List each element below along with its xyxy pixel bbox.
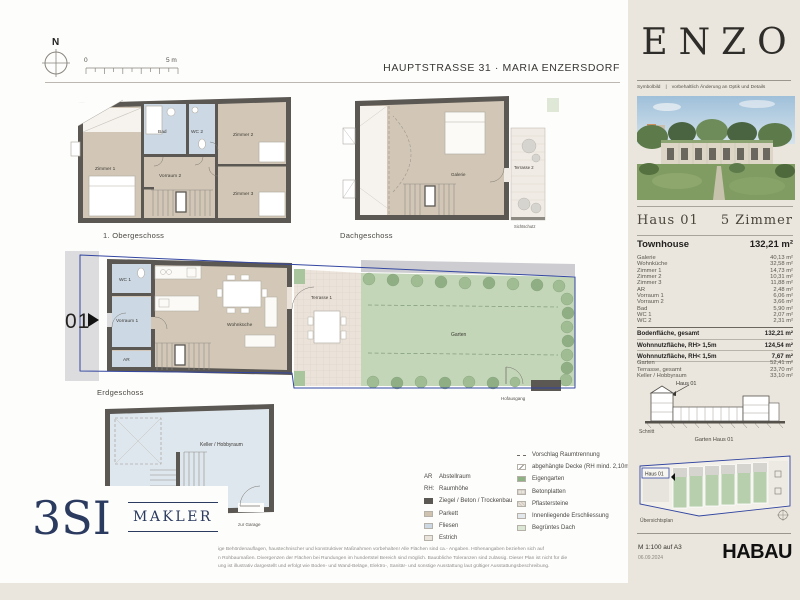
room-area: 6,06 m² xyxy=(773,293,793,299)
legend-column-right: Vorschlag Raumtrennung abgehängte Decke … xyxy=(517,449,631,534)
plan-sheet: N 0 5 m HAUPTSTRASSE 31 · MARIA ENZERSDO… xyxy=(0,0,800,600)
scale-bar: 0 5 m xyxy=(82,52,186,76)
room-name: Wohnküche xyxy=(637,261,668,267)
legend-row: AR Abstellraum xyxy=(424,471,512,483)
extras-table: Garten 52,41 m² Terrasse, gesamt 23,70 m… xyxy=(637,360,793,380)
legend-abbr: AR xyxy=(424,474,432,480)
room-label-wc2: WC 2 xyxy=(191,129,203,135)
extra-label: Garten xyxy=(637,360,655,366)
symbolbild-label: Symbolbild xyxy=(637,85,660,90)
legend-label: Innenliegende Erschliessung xyxy=(532,513,609,519)
legend-row: RH: Raumhöhe xyxy=(424,483,512,495)
legend-row: Fliesen xyxy=(424,520,512,532)
legend-swatch xyxy=(517,501,526,507)
rooms-table: Galerie 40,13 m² Wohnküche 32,58 m² Zimm… xyxy=(637,255,793,324)
room-label-bad: Bad xyxy=(158,129,167,135)
legend-row: Ziegel / Beton / Trockenbau xyxy=(424,495,512,507)
legend-swatch xyxy=(517,513,526,519)
haus-row: Haus 01 5 Zimmer xyxy=(637,206,793,236)
extra-row: Keller / Hobbyraum 33,10 m² xyxy=(637,373,793,380)
room-area: 2,31 m² xyxy=(773,318,793,324)
legend-abbr: RH: xyxy=(424,486,434,492)
north-label: N xyxy=(52,37,59,48)
siteplan: Haus 01 xyxy=(637,446,795,522)
legend-swatch xyxy=(517,525,526,531)
room-name: WC 2 xyxy=(637,318,652,324)
room-label-galerie: Galerie xyxy=(451,172,466,177)
habau-logo: HABAU xyxy=(722,541,792,564)
disclaimer-line: ung ist illustrativ dargestellt und erfo… xyxy=(218,563,625,572)
legend-swatch xyxy=(517,455,526,456)
room-label-vorraum2: Vorraum 2 xyxy=(159,173,181,179)
room-name: Zimmer 1 xyxy=(637,268,661,274)
uebersichtsplan-caption: Übersichtsplan xyxy=(640,518,673,524)
total-row: Bodenfläche, gesamt 132,21 m² xyxy=(637,327,793,340)
room-label-terrasse2: Terrasse 2 xyxy=(514,165,534,170)
legend-label: Fliesen xyxy=(439,523,458,529)
3si-logo: 3SI xyxy=(32,488,111,548)
sidebar-bottom-rule xyxy=(637,533,791,534)
legend-swatch xyxy=(517,464,526,470)
compass-icon: N xyxy=(40,34,84,80)
room-area: 2,07 m² xyxy=(773,312,793,318)
legend-swatch xyxy=(517,476,526,482)
legend-row: Estrich xyxy=(424,532,512,544)
legend-label: abgehängte Decke (RH mind. 2,10m) xyxy=(532,464,631,470)
room-name: Zimmer 2 xyxy=(637,274,661,280)
legend-row: Betonplatten xyxy=(517,486,631,498)
room-label-zimmer3: Zimmer 3 xyxy=(233,191,254,197)
room-area: 40,13 m² xyxy=(770,255,793,261)
room-area: 5,90 m² xyxy=(773,306,793,312)
legend-label: Eigengarten xyxy=(532,476,564,482)
legend-swatch xyxy=(424,498,433,504)
room-name: Vorraum 1 xyxy=(637,293,664,299)
legend-label: Betonplatten xyxy=(532,489,566,495)
unit-number: 01 xyxy=(65,310,90,333)
room-area: 10,31 m² xyxy=(770,274,793,280)
label-sichtschutz: Sichtschutz xyxy=(514,224,535,229)
garten-haus-caption: Garten Haus 01 xyxy=(628,437,800,443)
room-area: 3,66 m² xyxy=(773,299,793,305)
legend-swatch xyxy=(424,535,433,541)
room-label-zimmer1: Zimmer 1 xyxy=(95,166,116,172)
room-label-wc1: WC 1 xyxy=(119,277,131,283)
room-area: 32,58 m² xyxy=(770,261,793,267)
caption-eg: Erdgeschoss xyxy=(97,388,144,397)
extra-row: Garten 52,41 m² xyxy=(637,360,793,367)
legend-label: Parkett xyxy=(439,511,458,517)
disclaimer-text: ige Behördenauflagen, haustechnischer un… xyxy=(218,546,625,572)
symbolbild-text: vorbehaltlich Änderung an Optik und Deta… xyxy=(672,85,766,90)
total-label: Bodenfläche, gesamt xyxy=(637,330,699,337)
legend-swatch xyxy=(424,511,433,517)
room-name: Vorraum 2 xyxy=(637,299,664,305)
unit-area-value: 132,21 m² xyxy=(750,239,793,250)
sidebar-rule xyxy=(637,80,791,81)
room-label-ar: AR xyxy=(123,357,130,363)
room-name: Zimmer 3 xyxy=(637,280,661,286)
page-title: HAUPTSTRASSE 31 · MARIA ENZERSDORF xyxy=(300,62,620,74)
room-area: 11,88 m² xyxy=(771,280,793,286)
legend-row: Innenliegende Erschliessung xyxy=(517,510,631,522)
legend-row: Parkett xyxy=(424,508,512,520)
haus-label: Haus 01 xyxy=(637,213,699,228)
nutzflaeche-value: 7,67 m² xyxy=(772,353,793,360)
extra-label: Terrasse, gesamt xyxy=(637,367,681,373)
scale-note: M 1:100 auf A3 xyxy=(638,544,682,551)
siteplan-haus-label: Haus 01 xyxy=(645,472,664,478)
schnitt-caption: Schnitt xyxy=(639,429,654,435)
extra-row: Terrasse, gesamt 23,70 m² xyxy=(637,367,793,374)
room-label-terrasse1: Terrasse 1 xyxy=(311,295,333,300)
room-label-wohnkueche: Wohnküche xyxy=(227,322,253,328)
nutzflaeche-row: Wohnnutzfläche, RH> 1,5m 124,54 m² xyxy=(637,340,793,351)
floorplan-og1: Zimmer 1 Bad WC 2 Zimmer 2 Vorraum 2 Zim… xyxy=(63,92,310,232)
room-area: 2,48 m² xyxy=(773,287,793,293)
caption-og1: 1. Obergeschoss xyxy=(103,231,164,240)
legend-label: Vorschlag Raumtrennung xyxy=(532,452,600,458)
nutzflaeche-value: 124,54 m² xyxy=(765,342,793,349)
extra-value: 23,70 m² xyxy=(770,367,793,373)
legend-label: Estrich xyxy=(439,535,457,541)
legend-label: Begrüntes Dach xyxy=(532,525,575,531)
symbolbild-note: Symbolbild | vorbehaltlich Änderung an O… xyxy=(637,85,795,90)
legend-column-left: AR Abstellraum RH: Raumhöhe Ziegel / Bet… xyxy=(424,471,512,544)
nutzflaeche-label: Wohnnutzfläche, RH< 1,5m xyxy=(637,353,716,360)
room-name: Galerie xyxy=(637,255,656,261)
siteplan-compass-icon xyxy=(777,509,789,521)
room-label-vorraum1: Vorraum 1 xyxy=(116,318,138,324)
zimmer-label: 5 Zimmer xyxy=(721,213,793,228)
room-label-zimmer2: Zimmer 2 xyxy=(233,132,254,138)
room-label-keller: Keller / Hobbyraum xyxy=(200,442,243,448)
legend-label: Pflastersteine xyxy=(532,501,568,507)
scale-end: 5 m xyxy=(166,57,177,64)
header-rule xyxy=(45,82,620,83)
label-zur-garage: zur Garage xyxy=(238,522,261,527)
legend-row: Vorschlag Raumtrennung xyxy=(517,449,631,461)
sidebar: ENZO Symbolbild | vorbehaltlich Änderung… xyxy=(628,0,800,600)
caption-dg: Dachgeschoss xyxy=(340,231,393,240)
symbolbild-separator: | xyxy=(665,85,666,90)
legend-row: Eigengarten xyxy=(517,473,631,485)
nutzflaeche-label: Wohnnutzfläche, RH> 1,5m xyxy=(637,342,716,349)
legend-row: abgehängte Decke (RH mind. 2,10m) xyxy=(517,461,631,473)
disclaimer-line: ige Behördenauflagen, haustechnischer un… xyxy=(218,546,625,555)
room-row: WC 2 2,31 m² xyxy=(637,318,793,324)
section-drawing xyxy=(637,383,795,431)
makler-logo: MAKLER xyxy=(128,502,218,532)
room-name: AR xyxy=(637,287,645,293)
extra-value: 33,10 m² xyxy=(770,373,793,379)
label-hofausgang: Hofausgang xyxy=(501,396,526,401)
legend-swatch xyxy=(517,489,526,495)
label-garten: Garten xyxy=(451,332,467,338)
date-label: 06.09.2024 xyxy=(638,555,663,561)
hero-photo xyxy=(637,96,795,200)
legend-label: Raumhöhe xyxy=(439,486,468,492)
room-name: Bad xyxy=(637,306,647,312)
legend-row: Begrüntes Dach xyxy=(517,522,631,534)
brand-enzo: ENZO xyxy=(628,22,800,63)
legend-row: Pflastersteine xyxy=(517,498,631,510)
disclaimer-line: n Rohbaumaßen. Divergenzen der Flächen b… xyxy=(218,555,625,564)
unit-type-label: Townhouse xyxy=(637,239,689,250)
legend-swatch xyxy=(424,523,433,529)
floorplan-eg: 01 WC 1 Vorraum 1 AR Wohnküche Terrasse … xyxy=(63,247,620,403)
nutzflaeche-rows: Wohnnutzfläche, RH> 1,5m 124,54 m² Wohnn… xyxy=(637,340,793,362)
room-name: WC 1 xyxy=(637,312,652,318)
floorplan-dg: Galerie Terrasse 2 Sichtschutz xyxy=(333,92,561,234)
total-value: 132,21 m² xyxy=(765,330,793,337)
legend-label: Ziegel / Beton / Trockenbau xyxy=(439,498,512,504)
scale-start: 0 xyxy=(84,57,88,64)
legend-label: Abstellraum xyxy=(439,474,471,480)
room-area: 14,73 m² xyxy=(770,268,793,274)
extra-value: 52,41 m² xyxy=(770,360,793,366)
extra-label: Keller / Hobbyraum xyxy=(637,373,687,379)
unit-type-row: Townhouse 132,21 m² xyxy=(637,239,793,250)
